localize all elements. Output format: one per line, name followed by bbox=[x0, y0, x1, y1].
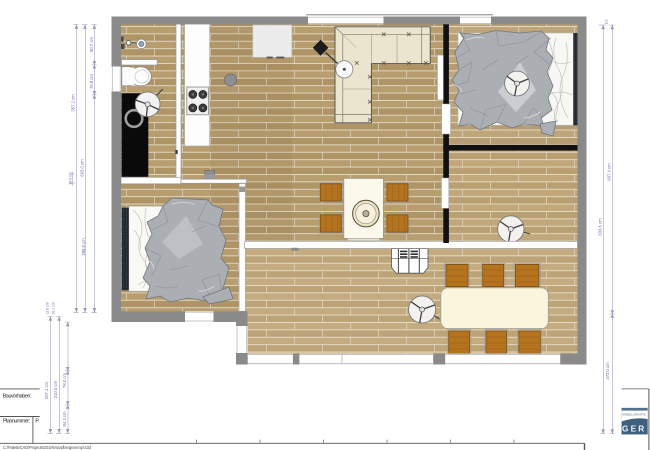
svg-text:357.2 cm: 357.2 cm bbox=[71, 94, 76, 112]
svg-text:P: P bbox=[35, 418, 39, 424]
svg-text:288.8 cm: 288.8 cm bbox=[81, 238, 86, 256]
svg-text:8.2: 8.2 bbox=[605, 20, 609, 25]
svg-text:12.6 cm: 12.6 cm bbox=[46, 302, 50, 314]
svg-text:372.0 cm: 372.0 cm bbox=[605, 362, 610, 380]
svg-text:16.0 cm: 16.0 cm bbox=[69, 172, 73, 185]
svg-text:603.0 cm: 603.0 cm bbox=[80, 159, 85, 177]
svg-text:210.0 cm: 210.0 cm bbox=[53, 380, 58, 398]
svg-text:16.1 cm: 16.1 cm bbox=[52, 302, 56, 314]
svg-text:633.6 cm: 633.6 cm bbox=[598, 218, 603, 236]
svg-text:C:\PaletteCAD\Projects\2019\Vo: C:\PaletteCAD\Projects\2019\Vorarlbergex… bbox=[3, 445, 92, 450]
svg-text:Bauvorhaben:: Bauvorhaben: bbox=[3, 393, 32, 399]
svg-text:MÖBELUNIKATE: MÖBELUNIKATE bbox=[622, 413, 645, 417]
svg-text:607.4 cm: 607.4 cm bbox=[606, 163, 611, 181]
svg-text:Plannummer:: Plannummer: bbox=[3, 419, 30, 425]
svg-text:GER: GER bbox=[622, 424, 646, 433]
svg-text:78.0 cm: 78.0 cm bbox=[62, 373, 67, 388]
svg-text:76.8 cm: 76.8 cm bbox=[89, 74, 94, 89]
svg-text:90.7 cm: 90.7 cm bbox=[89, 37, 94, 52]
svg-text:257.1 cm: 257.1 cm bbox=[44, 381, 49, 399]
svg-text:84.3 cm: 84.3 cm bbox=[62, 411, 67, 426]
